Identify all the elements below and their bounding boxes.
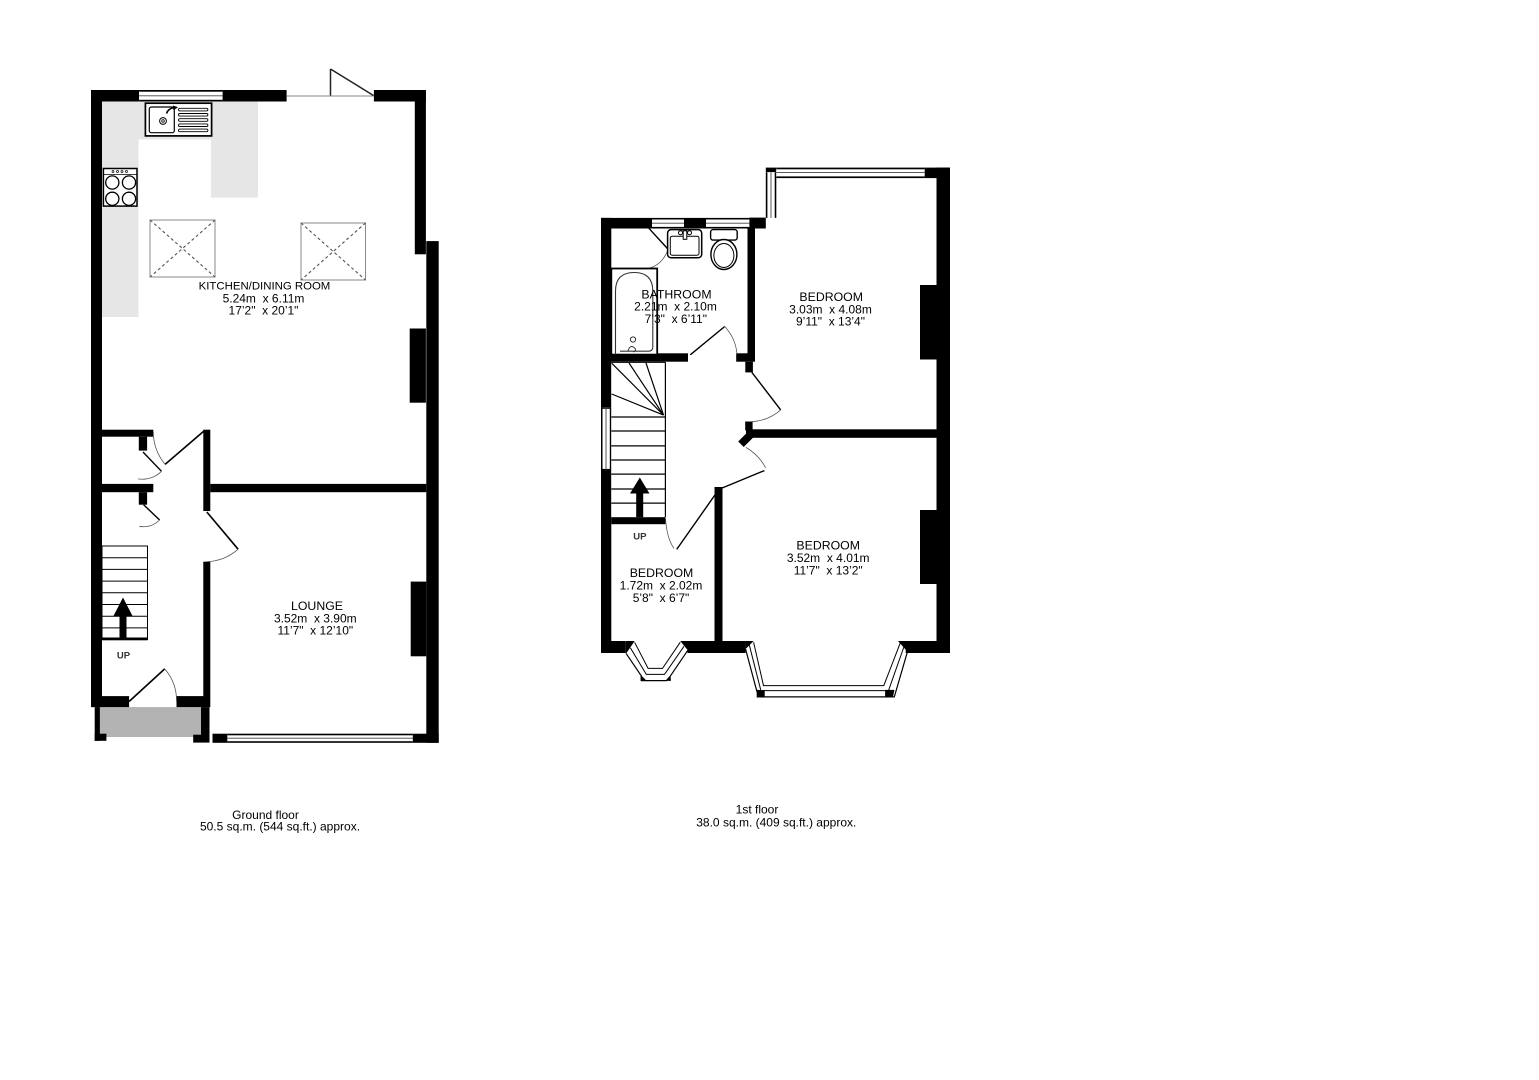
svg-text:11’7" x 13’2": 11’7" x 13’2" (794, 563, 863, 577)
svg-text:9’11" x 13’4": 9’11" x 13’4" (796, 315, 865, 329)
svg-text:UP: UP (633, 532, 647, 543)
svg-text:7’3" x 6’11": 7’3" x 6’11" (645, 312, 707, 326)
svg-text:17’2" x 20’1": 17’2" x 20’1" (229, 304, 299, 318)
svg-text:38.0 sq.m. (409 sq.ft.) approx: 38.0 sq.m. (409 sq.ft.) approx. (696, 816, 856, 830)
svg-text:1st floor: 1st floor (736, 802, 779, 816)
svg-text:UP: UP (117, 651, 131, 662)
svg-text:5’8" x 6’7": 5’8" x 6’7" (633, 591, 690, 605)
svg-text:11’7" x 12’10": 11’7" x 12’10" (277, 624, 353, 638)
svg-text:50.5 sq.m. (544 sq.ft.) approx: 50.5 sq.m. (544 sq.ft.) approx. (200, 819, 360, 833)
